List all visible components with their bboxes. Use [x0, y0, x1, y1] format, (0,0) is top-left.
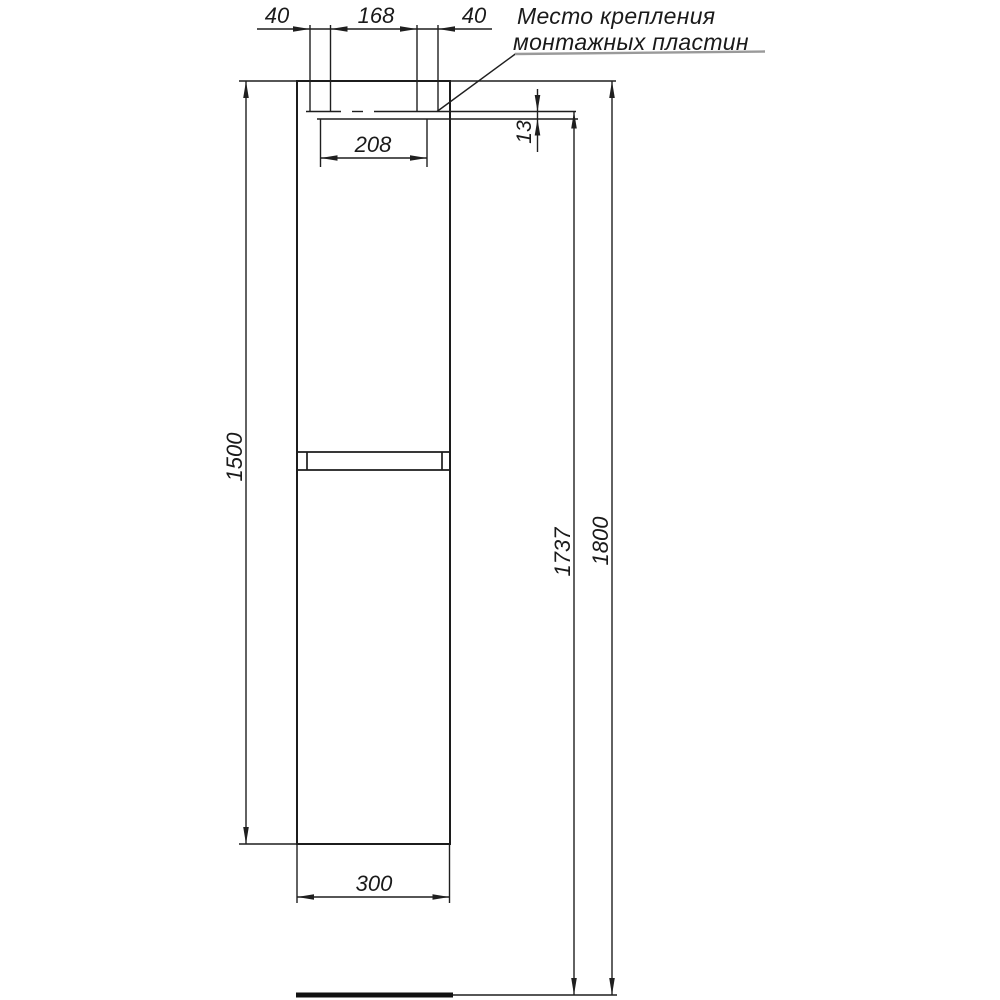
arrowhead-right-icon: [410, 155, 427, 161]
dimension-300: 300: [297, 845, 450, 903]
arrowhead-right-icon: [293, 26, 310, 31]
cabinet-outline: [297, 81, 450, 844]
dim-label-1800: 1800: [588, 516, 613, 566]
dimension-208: 208: [321, 119, 428, 167]
arrowhead-down-icon: [243, 827, 249, 844]
arrowhead-left-icon: [331, 26, 348, 31]
arrowhead-left-icon: [297, 894, 314, 900]
arrowhead-left-icon: [438, 26, 455, 31]
dimension-top-chain: 40 168 40: [257, 3, 492, 112]
technical-drawing-page: 40 168 40 208 13 1500 1737 1800: [0, 0, 1000, 1000]
dim-label-40-left: 40: [265, 3, 290, 28]
dim-label-1737: 1737: [550, 527, 575, 577]
dim-label-300: 300: [356, 871, 393, 896]
dimension-1737: 1737: [550, 112, 577, 996]
note-line-1: Место крепления: [517, 3, 715, 29]
leader-line: [437, 54, 516, 112]
dim-label-208: 208: [354, 132, 392, 157]
arrowhead-down-icon: [571, 978, 577, 995]
note-line-2: монтажных пластин: [513, 29, 749, 55]
arrowhead-down-icon: [535, 95, 541, 112]
arrowhead-right-icon: [400, 26, 417, 31]
cabinet: [297, 81, 450, 844]
dimension-1800: 1800: [588, 81, 615, 995]
arrowhead-down-icon: [609, 978, 615, 995]
dimension-1500: 1500: [222, 81, 298, 844]
arrowhead-right-icon: [433, 894, 450, 900]
arrowhead-left-icon: [321, 155, 338, 161]
dim-label-13: 13: [513, 120, 536, 144]
dim-label-40-right: 40: [462, 3, 487, 28]
arrowhead-up-icon: [571, 112, 577, 129]
arrowhead-up-icon: [243, 81, 249, 98]
dim-label-168: 168: [358, 3, 395, 28]
arrowhead-up-icon: [609, 81, 615, 98]
cabinet-mounting-drawing: 40 168 40 208 13 1500 1737 1800: [0, 0, 1000, 1000]
dimension-13: 13: [513, 89, 540, 152]
dim-label-1500: 1500: [222, 432, 247, 482]
